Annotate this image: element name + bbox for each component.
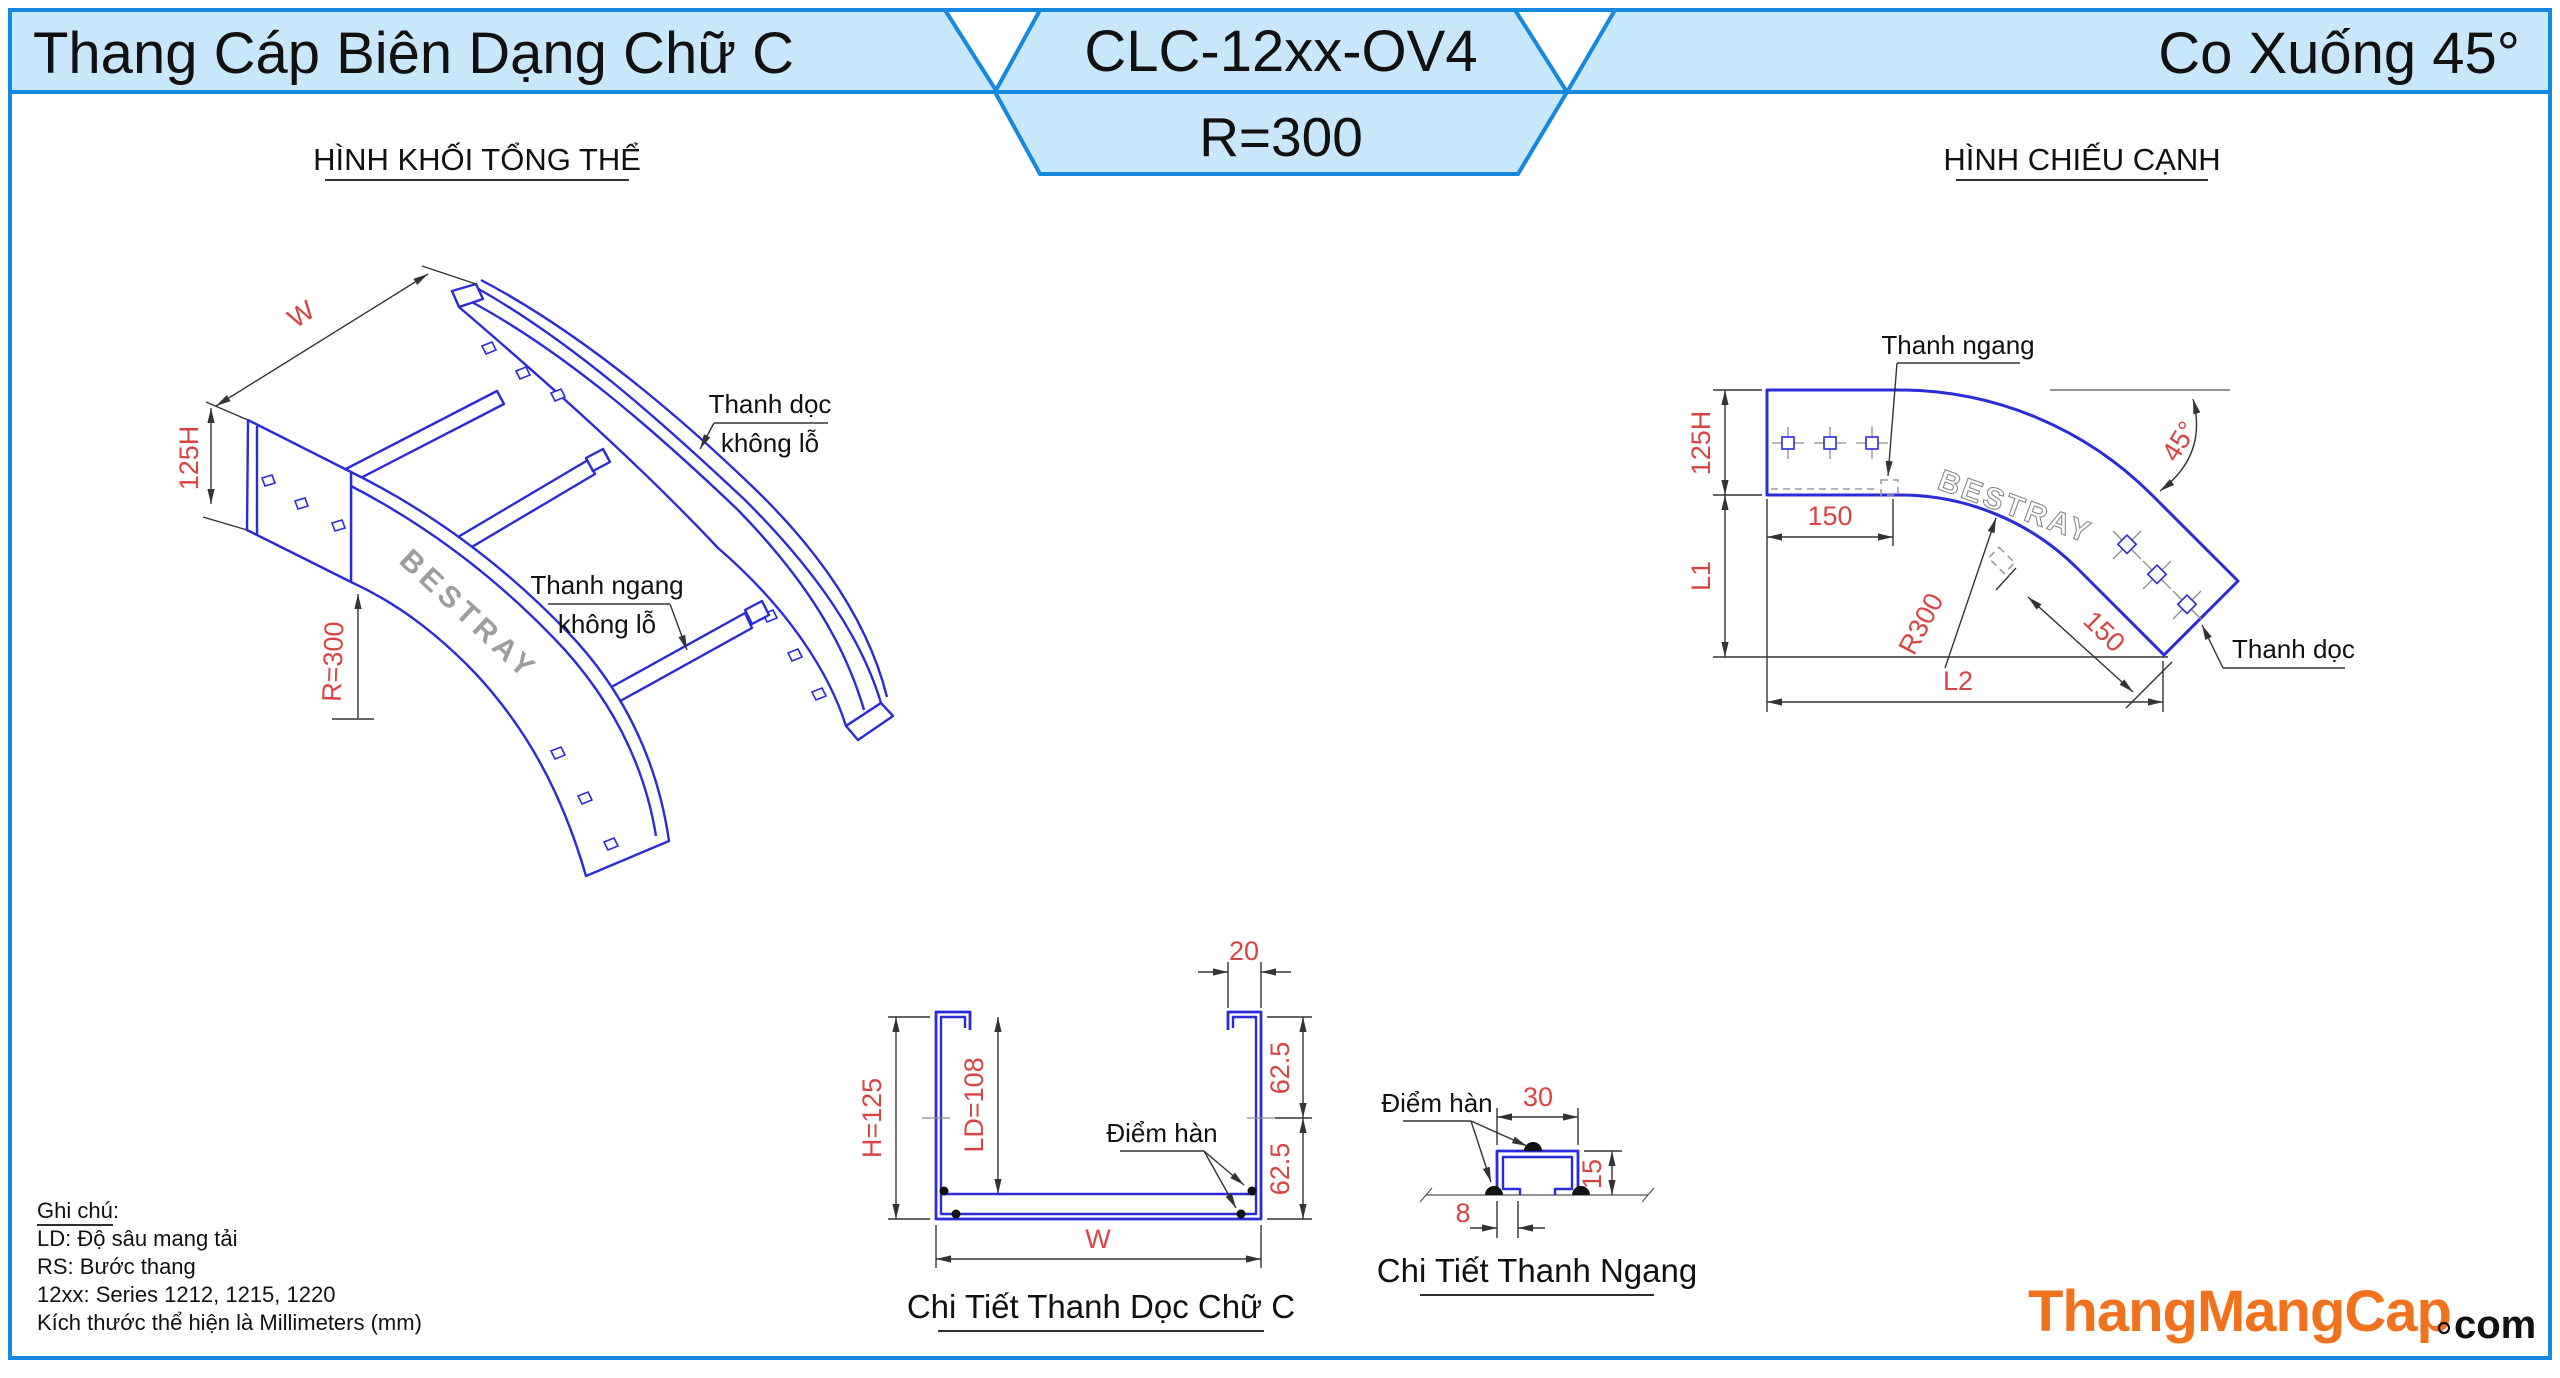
dim-125h-3d: 125H [174, 426, 204, 491]
cad-drawing-canvas: Thang Cáp Biên Dạng Chữ C CLC-12xx-OV4 R… [0, 0, 2560, 1373]
c-detail-title: Chi Tiết Thanh Dọc Chữ C [907, 1288, 1295, 1325]
dim-125h-side: 125H [1686, 411, 1716, 476]
label-thanh-ngang-3d-2: không lỗ [558, 609, 656, 639]
weld-dot [952, 1210, 961, 1219]
rung-detail-title: Chi Tiết Thanh Ngang [1377, 1252, 1697, 1289]
weld-dot [940, 1187, 949, 1196]
fitting-type: Co Xuống 45° [2158, 21, 2520, 86]
label-thanh-doc-side: Thanh dọc [2232, 634, 2355, 664]
dim-15: 15 [1577, 1159, 1607, 1189]
brand-logo-text: ThangMangCap [2028, 1279, 2451, 1344]
dim-l2: L2 [1943, 666, 1973, 696]
dim-l1: L1 [1686, 561, 1716, 591]
label-thanh-doc-3d: Thanh dọc [709, 389, 832, 419]
note-line-1: LD: Độ sâu mang tải [37, 1226, 238, 1251]
dim-ld108: LD=108 [959, 1057, 989, 1152]
label-weld-c: Điểm hàn [1106, 1118, 1217, 1148]
dim-150-top: 150 [1807, 501, 1852, 531]
label-thanh-doc-3d-2: không lỗ [721, 428, 819, 458]
dim-w-bottom: W [1085, 1224, 1111, 1254]
dim-20: 20 [1229, 936, 1259, 966]
overview-heading: HÌNH KHỐI TỔNG THỂ [313, 141, 641, 177]
dim-h125: H=125 [857, 1078, 887, 1158]
note-line-3: 12xx: Series 1212, 1215, 1220 [37, 1282, 335, 1307]
dim-30: 30 [1523, 1082, 1553, 1112]
brand-logo-suffix: com [2454, 1303, 2536, 1347]
note-line-4: Kích thước thể hiện là Millimeters (mm) [37, 1310, 422, 1335]
dim-62-5-bottom: 62.5 [1265, 1143, 1295, 1196]
label-thanh-ngang-3d: Thanh ngang [530, 570, 683, 600]
sheet-title: Thang Cáp Biên Dạng Chữ C [33, 21, 794, 86]
weld-dot [1248, 1187, 1257, 1196]
drawing-sheet: Thang Cáp Biên Dạng Chữ C CLC-12xx-OV4 R… [0, 0, 2560, 1373]
dim-r300-3d: R=300 [317, 621, 350, 702]
note-line-2: RS: Bước thang [37, 1254, 196, 1279]
product-code: CLC-12xx-OV4 [1084, 19, 1477, 84]
dim-62-5-top: 62.5 [1265, 1042, 1295, 1095]
label-thanh-ngang-side: Thanh ngang [1881, 330, 2034, 360]
radius-value: R=300 [1199, 106, 1363, 168]
label-weld-rung: Điểm hàn [1381, 1088, 1492, 1118]
notes-title: Ghi chú: [37, 1198, 119, 1223]
weld-dot [1237, 1210, 1246, 1219]
dim-8: 8 [1455, 1198, 1470, 1228]
side-view-heading: HÌNH CHIẾU CẠNH [1943, 142, 2220, 177]
